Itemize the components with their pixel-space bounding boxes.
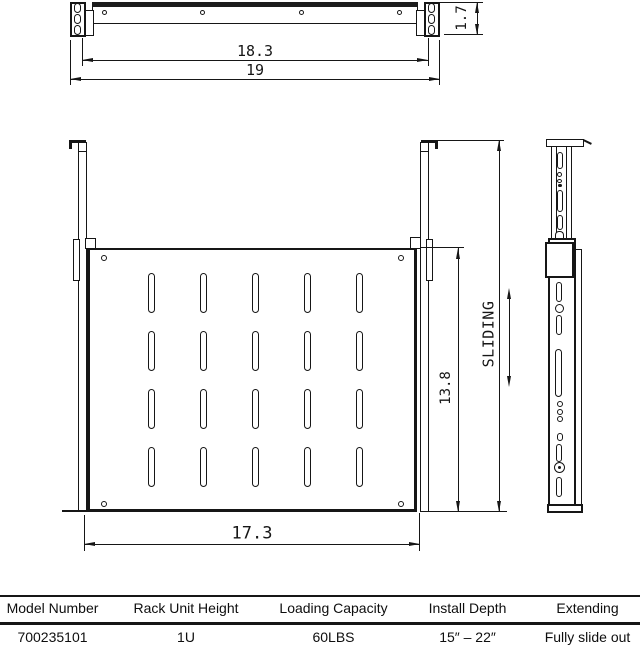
ear-slot [428, 3, 435, 13]
spec-value-rack-unit-height: 1U [105, 627, 267, 647]
corner-hole [398, 255, 404, 261]
mounting-plate-left [85, 10, 94, 36]
arrowhead-icon [456, 248, 460, 259]
rail-body [78, 142, 87, 512]
rail-hole [557, 409, 563, 415]
spec-value-install-depth: 15″ – 22″ [400, 627, 535, 647]
rail-hole [557, 179, 562, 183]
rail-hook [69, 140, 72, 149]
arrowhead-icon [84, 542, 95, 546]
rail-hole [557, 401, 563, 407]
corner-hole [398, 501, 404, 507]
rack-shelf-technical-drawing: 18.3 19 1.7 [0, 0, 640, 648]
vent-slot [200, 389, 207, 429]
vent-slot [252, 389, 259, 429]
arrowhead-icon [456, 501, 460, 512]
extension-line [62, 510, 87, 512]
motion-line [509, 297, 510, 379]
rail-tab [85, 238, 96, 249]
arrowhead-icon [507, 288, 511, 299]
dim-label: 17.3 [232, 526, 273, 543]
vent-slot [200, 273, 207, 313]
vent-slot [148, 447, 155, 487]
dimension-line [458, 248, 459, 512]
rail-slot [557, 152, 563, 169]
rail-slot [557, 190, 563, 212]
vent-slot [356, 273, 363, 313]
rail-slot [557, 215, 563, 230]
dimension-line [84, 544, 420, 545]
arrowhead-icon [507, 376, 511, 387]
vent-slot [304, 447, 311, 487]
arrowhead-icon [497, 140, 501, 151]
rail-hole [557, 416, 563, 422]
rail-slot [556, 282, 562, 302]
ear-slot [428, 14, 435, 24]
sliding-label: SLIDING [482, 301, 497, 368]
table-rule-middle [0, 622, 640, 625]
rail-slot [556, 315, 562, 335]
arrowhead-icon [82, 58, 93, 62]
rail-bottom-cap [547, 504, 583, 513]
vent-slot [148, 389, 155, 429]
rail-hole [557, 433, 563, 441]
panel-hole [397, 10, 402, 15]
rail-body [420, 142, 429, 512]
ear-slot [428, 25, 435, 35]
spec-header-loading-capacity: Loading Capacity [267, 598, 400, 618]
ear-slot [74, 25, 81, 35]
rail-top-flange [546, 139, 584, 147]
rail-slide [426, 239, 433, 281]
arrowhead-icon [417, 58, 428, 62]
vent-slot [304, 389, 311, 429]
ear-slot [74, 3, 81, 13]
vent-slot [252, 331, 259, 371]
vent-slot [252, 273, 259, 313]
rail-hole [555, 304, 564, 313]
vent-slot-grid [125, 264, 385, 496]
vent-slot [356, 389, 363, 429]
spec-header-row: Model Number Rack Unit Height Loading Ca… [0, 598, 640, 618]
vent-slot [148, 273, 155, 313]
rail-slide [73, 239, 80, 281]
rivet-dot [558, 466, 561, 469]
corner-hole [101, 255, 107, 261]
front-panel-bar [92, 2, 418, 24]
dimension-line [499, 140, 500, 512]
mount-bracket-block [545, 242, 574, 278]
panel-hole [200, 10, 205, 15]
rail-slot [556, 477, 562, 497]
rail-slot [556, 444, 562, 462]
rail-rivet-dot [558, 184, 562, 187]
rail-step-line [420, 151, 429, 152]
spec-value-extending: Fully slide out [535, 627, 640, 647]
extension-line [438, 140, 504, 141]
dimension-line [70, 79, 440, 80]
dim-label: 18.3 [237, 44, 273, 59]
vent-slot [304, 273, 311, 313]
arrowhead-icon [497, 501, 501, 512]
spec-header-model-number: Model Number [0, 598, 105, 618]
vent-slot [356, 331, 363, 371]
vent-slot [148, 331, 155, 371]
dim-label: 13.8 [439, 371, 453, 405]
spec-value-loading-capacity: 60LBS [267, 627, 400, 647]
spec-table: Model Number Rack Unit Height Loading Ca… [0, 580, 640, 648]
vent-slot [200, 447, 207, 487]
vent-slot [356, 447, 363, 487]
table-rule-top [0, 595, 640, 597]
rear-flange-strip [575, 249, 582, 512]
rail-hole [557, 172, 562, 177]
dim-label: 19 [246, 63, 264, 78]
spec-value-row: 700235101 1U 60LBS 15″ – 22″ Fully slide… [0, 627, 640, 647]
extension-line [420, 511, 507, 512]
spec-value-model-number: 700235101 [0, 627, 105, 647]
dim-label: 1.7 [455, 5, 469, 30]
spec-header-install-depth: Install Depth [400, 598, 535, 618]
corner-hole [101, 501, 107, 507]
flange-lip [583, 139, 592, 144]
spec-header-extending: Extending [535, 598, 640, 618]
vent-slot [252, 447, 259, 487]
panel-hole [299, 10, 304, 15]
vent-slot [200, 331, 207, 371]
vent-slot [304, 331, 311, 371]
panel-hole [102, 10, 107, 15]
arrowhead-icon [429, 77, 440, 81]
ear-slot [74, 14, 81, 24]
rail-hook [435, 140, 438, 149]
arrowhead-icon [70, 77, 81, 81]
arrowhead-icon [475, 2, 479, 13]
arrowhead-icon [475, 24, 479, 35]
rail-channel-line [566, 147, 567, 242]
extension-line [428, 38, 429, 66]
spec-header-rack-unit-height: Rack Unit Height [105, 598, 267, 618]
arrowhead-icon [409, 542, 420, 546]
rail-step-line [78, 151, 87, 152]
rail-slot [555, 349, 562, 397]
